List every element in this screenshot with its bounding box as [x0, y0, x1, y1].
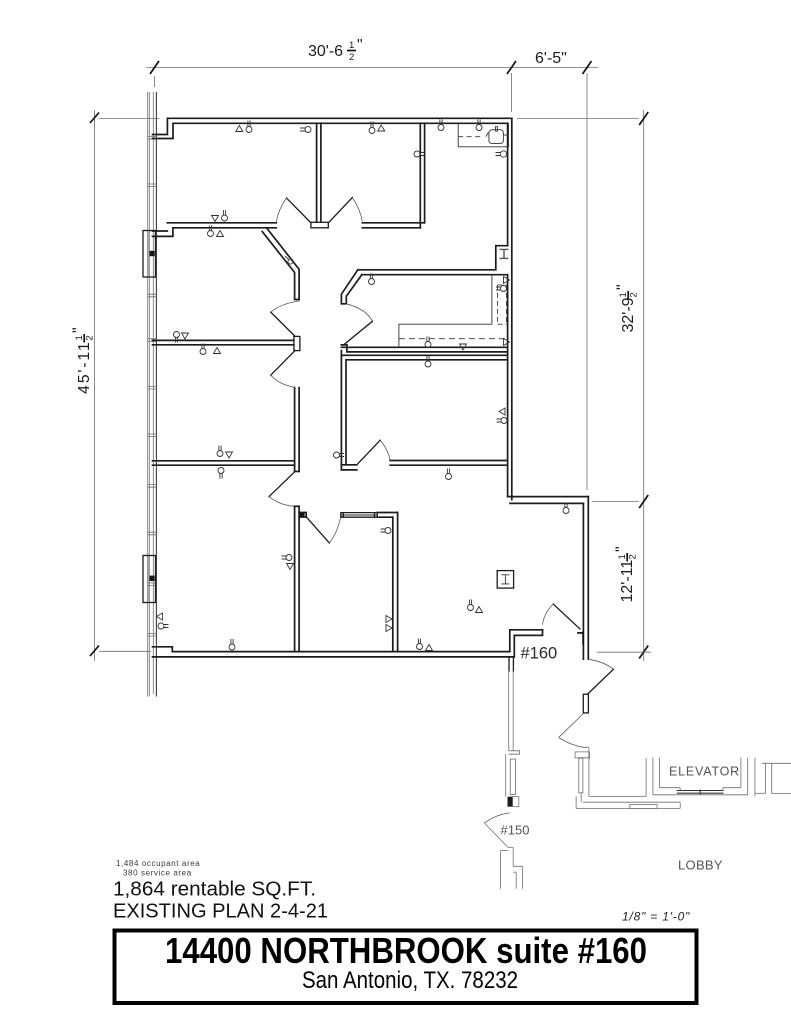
svg-text:2: 2 — [85, 335, 96, 340]
svg-text:": " — [614, 546, 631, 552]
svg-text:#150: #150 — [501, 823, 530, 838]
svg-text:1: 1 — [618, 292, 629, 297]
svg-text:32'-9: 32'-9 — [620, 297, 637, 332]
svg-text:2: 2 — [628, 554, 639, 559]
svg-text:2: 2 — [629, 292, 640, 297]
svg-text:#160: #160 — [521, 645, 558, 663]
svg-text:ELEVATOR: ELEVATOR — [669, 765, 740, 779]
svg-text:30'-6: 30'-6 — [308, 43, 343, 60]
svg-text:LOBBY: LOBBY — [678, 858, 723, 873]
svg-text:1: 1 — [74, 335, 85, 340]
svg-text:45'-11: 45'-11 — [76, 340, 93, 394]
svg-text:12'-11: 12'-11 — [619, 560, 636, 603]
svg-text:1,864 rentable SQ.FT.: 1,864 rentable SQ.FT. — [113, 878, 316, 901]
svg-text:14400 NORTHBROOK suite #160: 14400 NORTHBROOK suite #160 — [165, 930, 647, 971]
svg-text:": " — [615, 284, 632, 290]
svg-text:6'-5": 6'-5" — [535, 50, 567, 67]
svg-text:1/8" = 1'-0": 1/8" = 1'-0" — [622, 910, 690, 924]
svg-text:1: 1 — [617, 554, 628, 559]
svg-text:1,484 occupant area: 1,484 occupant area — [116, 859, 200, 868]
svg-text:1: 1 — [349, 40, 354, 51]
svg-text:": " — [71, 327, 88, 333]
svg-text:San Antonio, TX. 78232: San Antonio, TX. 78232 — [302, 967, 518, 994]
svg-text:EXISTING PLAN 2-4-21: EXISTING PLAN 2-4-21 — [113, 900, 328, 923]
svg-text:2: 2 — [349, 52, 354, 63]
svg-text:": " — [357, 37, 363, 54]
svg-text:380 service area: 380 service area — [123, 869, 192, 878]
